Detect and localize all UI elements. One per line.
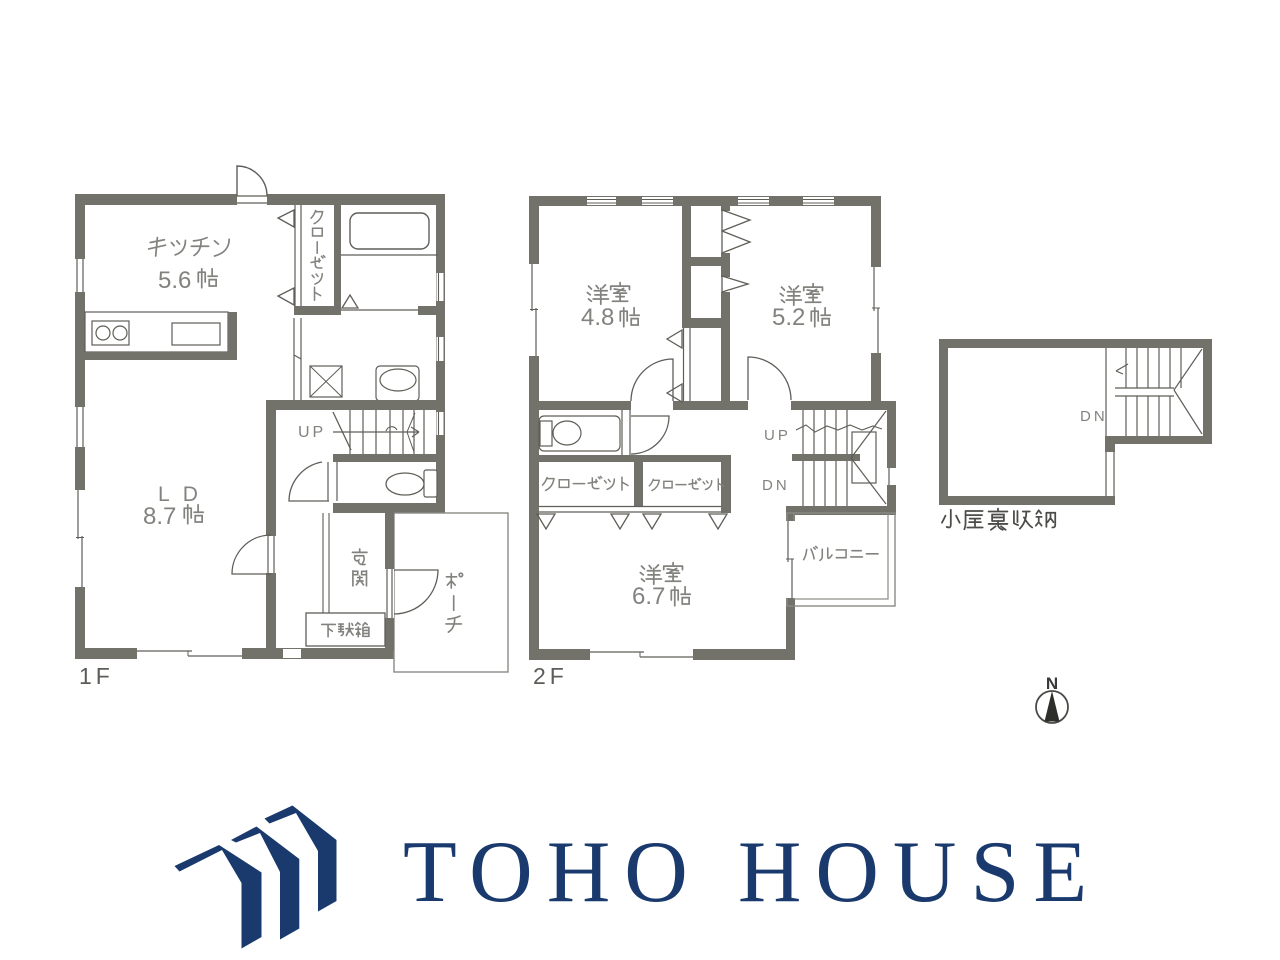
svg-text:5.6: 5.6 <box>158 267 191 294</box>
svg-text:2F: 2F <box>533 663 568 689</box>
svg-text:DN: DN <box>762 477 790 494</box>
svg-text:5.2: 5.2 <box>772 304 805 331</box>
svg-text:UP: UP <box>764 427 791 444</box>
svg-text:UP: UP <box>298 424 326 441</box>
svg-text:1F: 1F <box>79 663 114 689</box>
svg-text:DN: DN <box>1080 408 1108 425</box>
svg-text:6.7: 6.7 <box>632 583 665 610</box>
svg-text:8.7: 8.7 <box>143 503 176 530</box>
svg-text:TOHO HOUSE: TOHO HOUSE <box>403 824 1101 921</box>
svg-text:4.8: 4.8 <box>581 304 614 331</box>
